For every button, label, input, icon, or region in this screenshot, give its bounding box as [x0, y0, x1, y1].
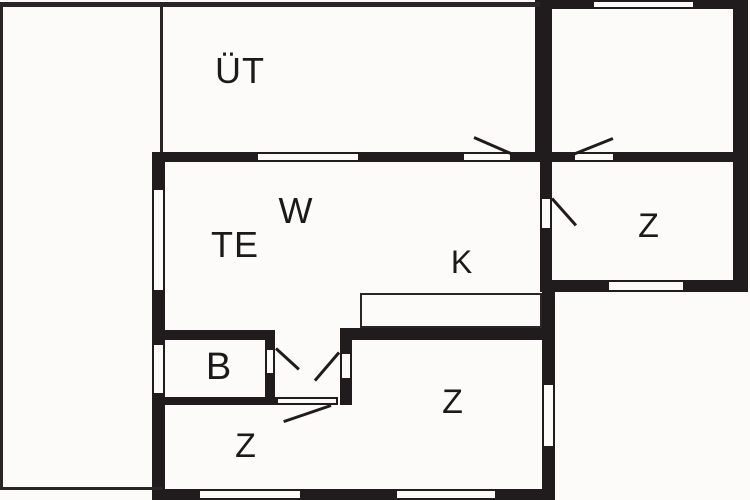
- window-opening: [542, 383, 555, 448]
- door-swing-line: [314, 352, 340, 382]
- door-swing-line: [275, 347, 300, 370]
- room-label-z-south: Z: [442, 385, 464, 419]
- door-opening: [265, 348, 275, 375]
- window-opening: [607, 280, 685, 292]
- door-opening: [340, 352, 352, 380]
- thin-wall-segment: [0, 2, 3, 490]
- wall-segment: [542, 448, 555, 500]
- wall-segment: [540, 162, 552, 197]
- wall-segment: [340, 328, 352, 352]
- wall-segment: [540, 230, 552, 292]
- window-opening: [198, 489, 302, 500]
- wall-segment: [537, 0, 592, 9]
- window-opening: [152, 188, 165, 292]
- room-label-b: B: [206, 348, 232, 386]
- wall-segment: [152, 152, 256, 162]
- kitchen-counter: [360, 293, 542, 328]
- door-swing-line: [551, 198, 577, 227]
- wall-segment: [615, 152, 748, 162]
- wall-segment: [733, 0, 748, 292]
- wall-segment: [542, 280, 555, 383]
- thin-wall-segment: [160, 2, 163, 152]
- window-opening: [152, 343, 165, 395]
- wall-segment: [165, 397, 278, 405]
- door-opening: [462, 152, 512, 162]
- thin-wall-segment: [0, 487, 162, 490]
- room-label-ut: ÜT: [215, 53, 265, 89]
- wall-segment: [152, 292, 165, 343]
- room-label-z-southwest: Z: [235, 429, 257, 463]
- wall-segment: [152, 395, 165, 500]
- wall-segment: [165, 330, 275, 340]
- room-label-k: K: [451, 246, 473, 278]
- floor-plan: ÜT W TE K Z B Z Z: [0, 0, 750, 500]
- thin-wall-segment: [0, 2, 540, 7]
- window-opening: [592, 0, 695, 9]
- door-swing-line: [284, 404, 332, 423]
- wall-segment: [695, 0, 748, 9]
- room-label-w: W: [279, 193, 314, 229]
- wall-segment: [535, 0, 552, 162]
- wall-segment: [552, 152, 573, 162]
- window-opening: [395, 489, 497, 500]
- window-opening: [256, 152, 360, 162]
- room-label-z-east: Z: [638, 209, 660, 243]
- wall-segment: [340, 380, 352, 405]
- room-label-te: TE: [211, 227, 259, 263]
- wall-segment: [360, 152, 462, 162]
- door-opening: [540, 197, 552, 230]
- wall-segment: [302, 489, 395, 500]
- wall-segment: [340, 328, 555, 340]
- wall-segment: [552, 280, 607, 292]
